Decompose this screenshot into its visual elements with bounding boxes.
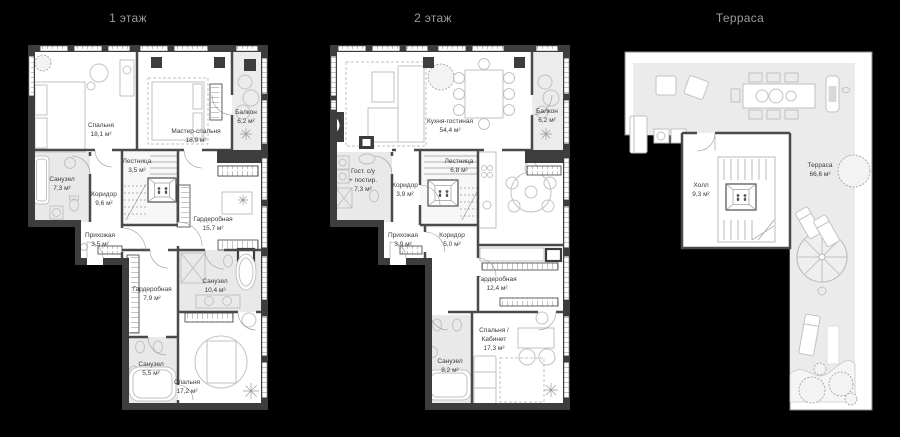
room-area: 54,4 м² — [439, 127, 461, 134]
wardrobe-icon — [210, 84, 222, 120]
bench-icon — [827, 326, 839, 364]
sofa-bed-icon — [474, 356, 496, 404]
flower-icon — [544, 383, 558, 397]
room-name: Прихожая — [85, 232, 116, 239]
room-name: Гост. с/у — [351, 168, 376, 175]
dining-table-icon — [465, 70, 503, 118]
room-name: Лестница — [445, 158, 474, 165]
room-name: Холл — [693, 182, 709, 189]
stairs-icon — [718, 157, 775, 242]
room-area: 7,3 м² — [53, 185, 71, 192]
room-area: 18,1 м² — [90, 131, 112, 138]
room-area: 3,9 м² — [394, 241, 412, 248]
room-area: 6,2 м² — [538, 117, 556, 124]
flower-icon — [240, 128, 252, 140]
room-name: Гардеробная — [193, 215, 233, 223]
safe-icon — [546, 249, 561, 261]
room-name: Лестница — [123, 158, 152, 165]
room-name: Терраса — [808, 162, 833, 169]
blanket-icon — [207, 341, 236, 383]
shelf-icon — [480, 248, 544, 261]
room-area: 6,2 м² — [237, 118, 255, 125]
room-name: Спальня — [88, 122, 115, 129]
room-area: 18,9 м² — [185, 137, 207, 144]
room-area: 5,5 м² — [142, 370, 160, 377]
room-name: Балкон — [536, 108, 558, 115]
wardrobe-icon — [500, 298, 558, 306]
room-area: 7,3 м² — [354, 186, 372, 193]
ac-unit-icon — [244, 59, 256, 71]
room-name: Мастер-спальня — [171, 128, 221, 135]
room-area: 15,7 м² — [202, 225, 224, 232]
dining-table-icon — [743, 84, 815, 108]
plant-icon — [799, 377, 825, 403]
terrace-title: Терраса — [716, 11, 764, 25]
round-table-icon — [511, 172, 551, 212]
room-name: Санузел — [202, 278, 228, 285]
wardrobe-icon — [185, 313, 233, 322]
room-name: Гардеробная — [477, 275, 517, 283]
room-area: 17,3 м² — [483, 345, 505, 352]
room-name: Коридор — [91, 191, 117, 198]
room-name: + постир. — [349, 177, 377, 184]
armchair-icon — [656, 76, 676, 95]
room-area: 7,9 м² — [143, 295, 161, 302]
room-name: Прихожая — [388, 232, 419, 239]
room-area: 5,0 м² — [443, 241, 461, 248]
room-area: 6,8 м² — [450, 167, 468, 174]
column-icon — [151, 57, 162, 68]
room-name: Балкон — [235, 109, 257, 116]
plant-icon — [35, 55, 51, 71]
room-name: Кабинет — [482, 335, 507, 343]
side-table-icon — [654, 129, 669, 143]
elevator-icon — [428, 180, 458, 206]
terrace-plan: Холл 9,3 м² Терраса 66,6 м² — [620, 45, 876, 415]
floor1-title: 1 этаж — [109, 11, 147, 25]
plant-icon — [845, 393, 857, 405]
room-name: Гардеробная — [132, 285, 172, 293]
room-name: Санузел — [49, 176, 75, 183]
elevator-icon — [148, 178, 176, 202]
sofa-icon — [398, 66, 424, 142]
room-area: 10,4 м² — [204, 287, 226, 294]
room-area: 66,6 м² — [809, 171, 831, 178]
room-area: 17,2 м² — [176, 388, 198, 395]
column-icon — [423, 57, 434, 68]
room-name: Коридор — [392, 182, 418, 189]
room-area: 3,5 м² — [91, 241, 109, 248]
column-icon — [514, 57, 525, 68]
room-area: 8,2 м² — [441, 367, 459, 374]
room-name: Спальня / — [479, 327, 509, 334]
room-area: 3,9 м² — [396, 191, 414, 198]
room-area: 9,3 м² — [692, 191, 710, 198]
floor1-plan: Спальня 18,1 м² Мастер-спальня 18,9 м² Б… — [23, 40, 273, 418]
room-name: Санузел — [138, 361, 164, 368]
plant-icon — [838, 155, 870, 187]
screenshot-root: { "page": { "background": "#000000", "co… — [0, 0, 900, 437]
room-name: Коридор — [439, 232, 465, 239]
floor2-title: 2 этаж — [414, 11, 452, 25]
room-name: Санузел — [437, 358, 463, 365]
room-area: 9,6 м² — [95, 200, 113, 207]
plant-icon — [829, 372, 853, 396]
plant-icon — [814, 363, 826, 375]
floor2-plan: Кухня-гостиная 54,4 м² Балкон 6,2 м² Гос… — [325, 40, 575, 418]
flower-icon — [540, 128, 552, 140]
room-name: Спальня — [174, 379, 201, 386]
elevator-icon — [726, 184, 756, 210]
room-area: 12,4 м² — [486, 285, 508, 292]
sofa-icon — [630, 116, 647, 153]
kitchen-counter-icon — [478, 152, 496, 228]
column-icon — [214, 57, 225, 68]
room-name: Кухня-гостиная — [427, 118, 473, 125]
room-area: 3,5 м² — [128, 167, 146, 174]
